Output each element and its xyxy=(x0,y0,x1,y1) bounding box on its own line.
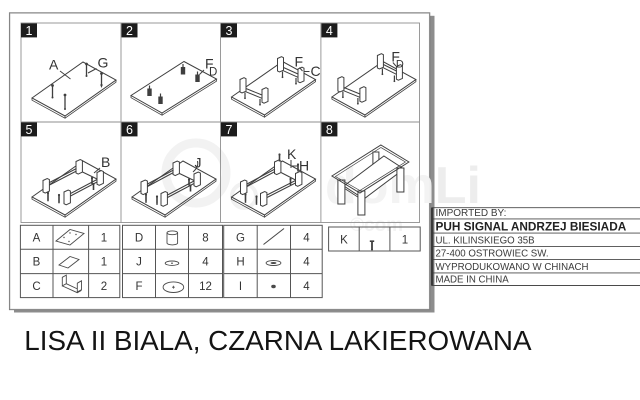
svg-text:2: 2 xyxy=(126,24,133,38)
svg-text:IMPORTED BY:: IMPORTED BY: xyxy=(436,208,507,219)
svg-text:6: 6 xyxy=(126,123,133,137)
svg-text:H: H xyxy=(236,257,244,269)
svg-text:B: B xyxy=(101,154,110,170)
svg-text:12: 12 xyxy=(199,281,212,293)
svg-text:4: 4 xyxy=(303,281,310,293)
svg-text:K: K xyxy=(340,235,348,247)
svg-text:J: J xyxy=(195,155,202,171)
svg-text:WYPRODUKOWANO W CHINACH: WYPRODUKOWANO W CHINACH xyxy=(436,262,589,273)
svg-text:1: 1 xyxy=(101,233,107,245)
svg-text:4: 4 xyxy=(326,24,333,38)
svg-text:1: 1 xyxy=(101,257,107,269)
svg-text:D: D xyxy=(135,233,143,245)
svg-text:A: A xyxy=(33,233,41,245)
svg-text:UL. KILINSKIEGO 35B: UL. KILINSKIEGO 35B xyxy=(436,235,535,246)
svg-text:H: H xyxy=(299,158,309,174)
svg-text:4: 4 xyxy=(202,257,209,269)
svg-text:D: D xyxy=(396,59,404,71)
svg-text:27-400 OSTROWIEC SW.: 27-400 OSTROWIEC SW. xyxy=(436,249,549,260)
svg-text:LISA II BIALA, CZARNA LAKIEROW: LISA II BIALA, CZARNA LAKIEROWANA xyxy=(24,325,532,356)
svg-text:C: C xyxy=(32,281,40,293)
svg-text:A: A xyxy=(49,57,59,73)
svg-text:MADE IN CHINA: MADE IN CHINA xyxy=(436,275,510,286)
svg-text:7: 7 xyxy=(226,123,233,137)
svg-text:3: 3 xyxy=(226,24,233,38)
svg-text:C: C xyxy=(311,63,321,79)
svg-text:J: J xyxy=(136,257,142,269)
svg-text:D: D xyxy=(209,67,217,79)
svg-text:I: I xyxy=(239,281,242,293)
svg-text:4: 4 xyxy=(303,233,310,245)
svg-text:F: F xyxy=(295,54,304,70)
svg-text:B: B xyxy=(33,257,41,269)
svg-text:8: 8 xyxy=(326,123,333,137)
svg-text:8: 8 xyxy=(202,233,208,245)
svg-text:G: G xyxy=(236,233,245,245)
svg-text:2: 2 xyxy=(101,281,107,293)
svg-text:PUH SIGNAL ANDRZEJ BIESIADA: PUH SIGNAL ANDRZEJ BIESIADA xyxy=(436,219,627,233)
svg-text:G: G xyxy=(98,55,109,71)
svg-text:F: F xyxy=(135,281,142,293)
svg-text:1: 1 xyxy=(402,235,408,247)
svg-text:K: K xyxy=(287,146,297,162)
svg-text:1: 1 xyxy=(26,24,33,38)
svg-text:5: 5 xyxy=(26,123,33,137)
svg-text:4: 4 xyxy=(303,257,310,269)
